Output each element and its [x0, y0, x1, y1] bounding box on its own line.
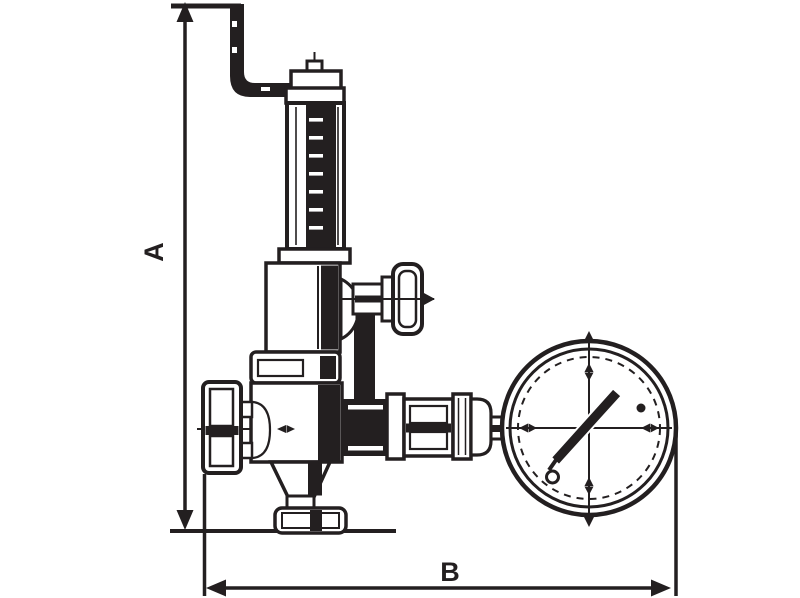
outlet-flange-ring — [387, 394, 404, 459]
outlet-cap — [471, 399, 491, 455]
spring-housing — [279, 52, 350, 263]
gauge-needle-counterweight — [547, 471, 559, 483]
adjusting-rod — [230, 4, 292, 97]
cap-flange — [286, 88, 344, 103]
valve-dimension-drawing: A B — [0, 0, 800, 598]
bonnet — [266, 263, 340, 352]
side-handwheel-valve — [340, 264, 435, 403]
dim-b-arrow-right-icon — [651, 580, 671, 597]
valve-body — [251, 383, 346, 533]
gauge-set-marker-dot — [637, 404, 646, 413]
dim-a-arrow-down-icon — [177, 510, 194, 530]
spring-column — [306, 105, 336, 247]
body-neck — [287, 496, 314, 508]
dim-b-arrow-left-icon — [206, 580, 226, 597]
outlet-union — [342, 394, 504, 459]
union-nut — [251, 352, 340, 383]
outlet-ring — [453, 394, 471, 459]
housing-bottom-flange — [279, 249, 350, 263]
dim-b-label: B — [440, 557, 460, 587]
inlet-union — [203, 382, 252, 473]
drawing-canvas: A B — [0, 0, 800, 598]
dim-a-label: A — [139, 242, 169, 262]
pressure-gauge — [502, 331, 676, 527]
